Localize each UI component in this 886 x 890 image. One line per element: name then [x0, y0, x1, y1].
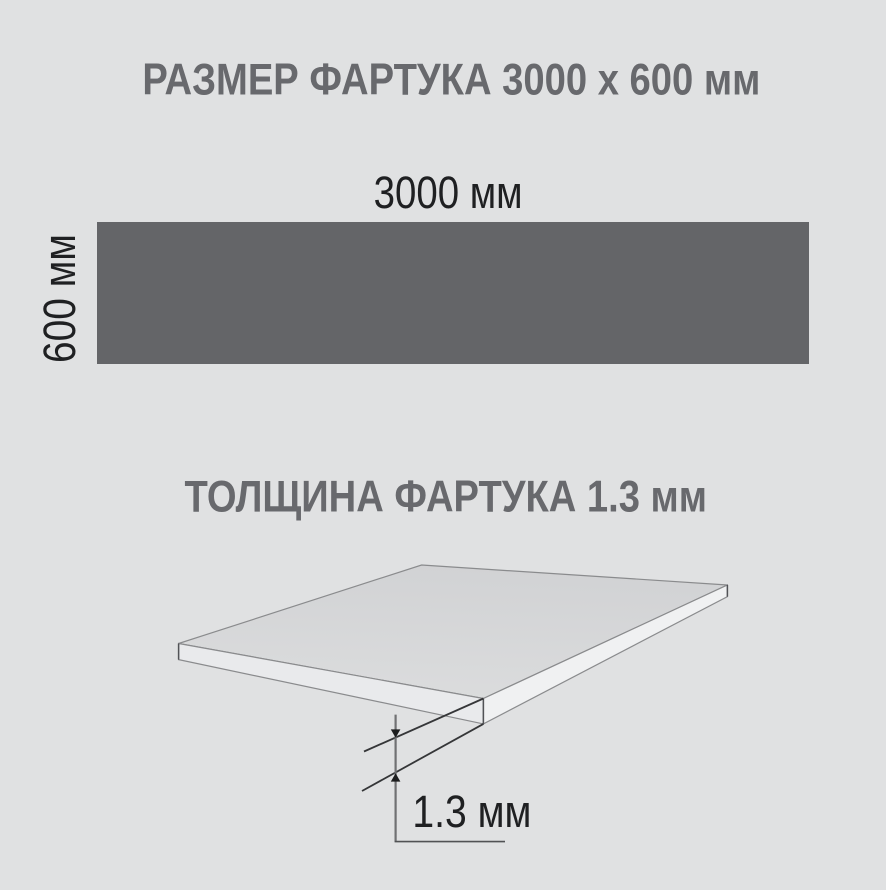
svg-text:600 мм: 600 мм [34, 234, 85, 363]
svg-text:ТОЛЩИНА ФАРТУКА 1.3 мм: ТОЛЩИНА ФАРТУКА 1.3 мм [185, 472, 708, 521]
svg-text:РАЗМЕР ФАРТУКА 3000 х 600 мм: РАЗМЕР ФАРТУКА 3000 х 600 мм [142, 56, 760, 105]
svg-text:3000 мм: 3000 мм [374, 167, 523, 218]
svg-text:1.3 мм: 1.3 мм [412, 786, 531, 837]
